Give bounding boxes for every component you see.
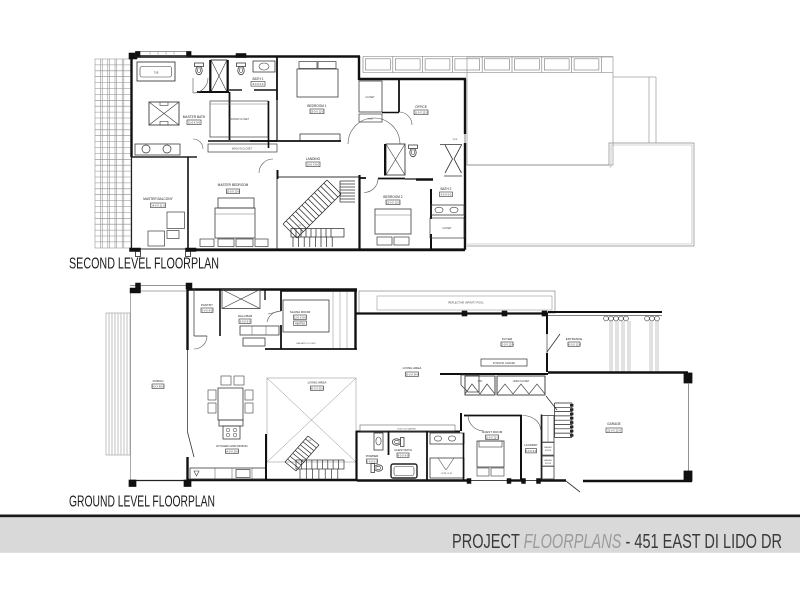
svg-text:12-0 X 12-0: 12-0 X 12-0	[386, 201, 400, 205]
svg-text:MASTER BEDROOM: MASTER BEDROOM	[218, 183, 249, 187]
svg-text:MASTER BATH: MASTER BATH	[183, 115, 206, 119]
svg-text:UP: UP	[298, 225, 302, 227]
svg-text:DRYER: DRYER	[545, 463, 552, 465]
svg-text:LIVING AREA: LIVING AREA	[308, 381, 327, 385]
svg-text:12-0 X 12-0: 12-0 X 12-0	[500, 342, 514, 346]
svg-text:GARAGE: GARAGE	[607, 422, 621, 426]
svg-text:DRYER: DRYER	[545, 450, 552, 452]
svg-text:BATH 2: BATH 2	[441, 187, 452, 191]
svg-text:PROJECT FLOORPLANS - 451 EAST: PROJECT FLOORPLANS - 451 EAST DI LIDO DR	[452, 530, 782, 553]
svg-text:14-0 X 21-0: 14-0 X 21-0	[151, 204, 165, 208]
svg-text:LIVING AREA: LIVING AREA	[403, 366, 422, 370]
svg-text:BEDROOM 1: BEDROOM 1	[307, 104, 326, 108]
svg-text:13-0 X 12-0: 13-0 X 12-0	[310, 110, 324, 114]
svg-text:11-0 X 12-0: 11-0 X 12-0	[485, 435, 499, 439]
svg-text:WIC: WIC	[478, 381, 483, 383]
svg-text:HEATED: HEATED	[295, 321, 305, 325]
svg-text:CLOSET: CLOSET	[365, 97, 375, 99]
svg-text:6-0 X 9-0: 6-0 X 9-0	[526, 449, 537, 453]
svg-text:SAUNA ROOM: SAUNA ROOM	[290, 310, 311, 314]
svg-text:MASTER CLOSET: MASTER CLOSET	[229, 118, 250, 121]
svg-text:20-0 X 22-0: 20-0 X 22-0	[310, 386, 324, 390]
svg-text:WTR CLST: WTR CLST	[441, 473, 453, 475]
svg-text:WALK IN CLOSET: WALK IN CLOSET	[232, 148, 253, 151]
svg-text:GUEST BATH: GUEST BATH	[394, 448, 412, 452]
svg-text:ENTRANCE: ENTRANCE	[566, 337, 583, 341]
svg-text:10-0 X 12-0: 10-0 X 12-0	[567, 342, 581, 346]
svg-text:RADIANT FLOORS: RADIANT FLOORS	[296, 342, 316, 345]
svg-text:BUILT-IN CABINET: BUILT-IN CABINET	[398, 428, 418, 431]
svg-text:CLOSET: CLOSET	[442, 228, 452, 230]
svg-text:MASTER BALCONY: MASTER BALCONY	[143, 197, 173, 201]
svg-text:9-0 X 40-0: 9-0 X 40-0	[152, 384, 165, 388]
svg-text:5-0 X 5-0: 5-0 X 5-0	[367, 459, 378, 463]
svg-text:5-0 X 9-0: 5-0 X 9-0	[202, 308, 213, 312]
svg-text:HALL/BAR: HALL/BAR	[238, 314, 253, 318]
svg-text:OFFICE: OFFICE	[415, 105, 427, 109]
svg-text:WTR: WTR	[453, 139, 458, 141]
svg-text:POWDER: POWDER	[366, 454, 379, 458]
svg-text:BATH 1: BATH 1	[253, 77, 264, 81]
svg-text:REFLECTIVE INFINITY POOL: REFLECTIVE INFINITY POOL	[448, 301, 484, 305]
svg-text:8-0 X 9-0: 8-0 X 9-0	[398, 453, 409, 457]
svg-text:KITCHEN AND DINING: KITCHEN AND DINING	[216, 444, 248, 448]
svg-text:WASHER: WASHER	[544, 459, 553, 462]
svg-text:WASHER: WASHER	[544, 446, 553, 449]
svg-text:12-0 X 9-0: 12-0 X 9-0	[294, 315, 307, 319]
svg-text:INTERIOR GARDEN: INTERIOR GARDEN	[493, 362, 516, 365]
svg-text:GROUND LEVEL FLOORPLAN: GROUND LEVEL FLOORPLAN	[69, 494, 215, 511]
svg-text:UP: UP	[308, 440, 312, 442]
svg-text:10-0 X 8-0: 10-0 X 8-0	[307, 163, 320, 167]
svg-text:PANTRY: PANTRY	[201, 303, 213, 307]
svg-text:TUB: TUB	[154, 72, 159, 75]
svg-text:15-0 X 13-0: 15-0 X 13-0	[226, 190, 240, 194]
svg-text:22-0 X 22-0: 22-0 X 22-0	[607, 429, 621, 433]
svg-text:20-0 X 24-0: 20-0 X 24-0	[405, 372, 419, 376]
svg-text:BEDROOM 2: BEDROOM 2	[383, 195, 402, 199]
svg-text:LAUNDRY: LAUNDRY	[524, 443, 537, 447]
svg-text:9-0 X 5-0: 9-0 X 5-0	[240, 319, 251, 323]
svg-text:SECOND LEVEL FLOORPLAN: SECOND LEVEL FLOORPLAN	[69, 256, 219, 273]
svg-text:11-0 X 12-0: 11-0 X 12-0	[414, 111, 428, 115]
svg-text:FOYER: FOYER	[502, 337, 513, 341]
svg-text:8-0 X 6-0: 8-0 X 6-0	[253, 82, 264, 86]
svg-text:9-0 X 6-0: 9-0 X 6-0	[441, 193, 452, 197]
svg-text:PORCH: PORCH	[153, 379, 164, 383]
svg-text:GUEST ROOM: GUEST ROOM	[482, 430, 503, 434]
svg-text:14-0 X 20-0: 14-0 X 20-0	[225, 449, 239, 453]
svg-text:LINEN CLOSET: LINEN CLOSET	[513, 381, 530, 383]
svg-text:11-0 X 9-0: 11-0 X 9-0	[188, 121, 200, 125]
svg-text:LANDING: LANDING	[306, 157, 321, 161]
